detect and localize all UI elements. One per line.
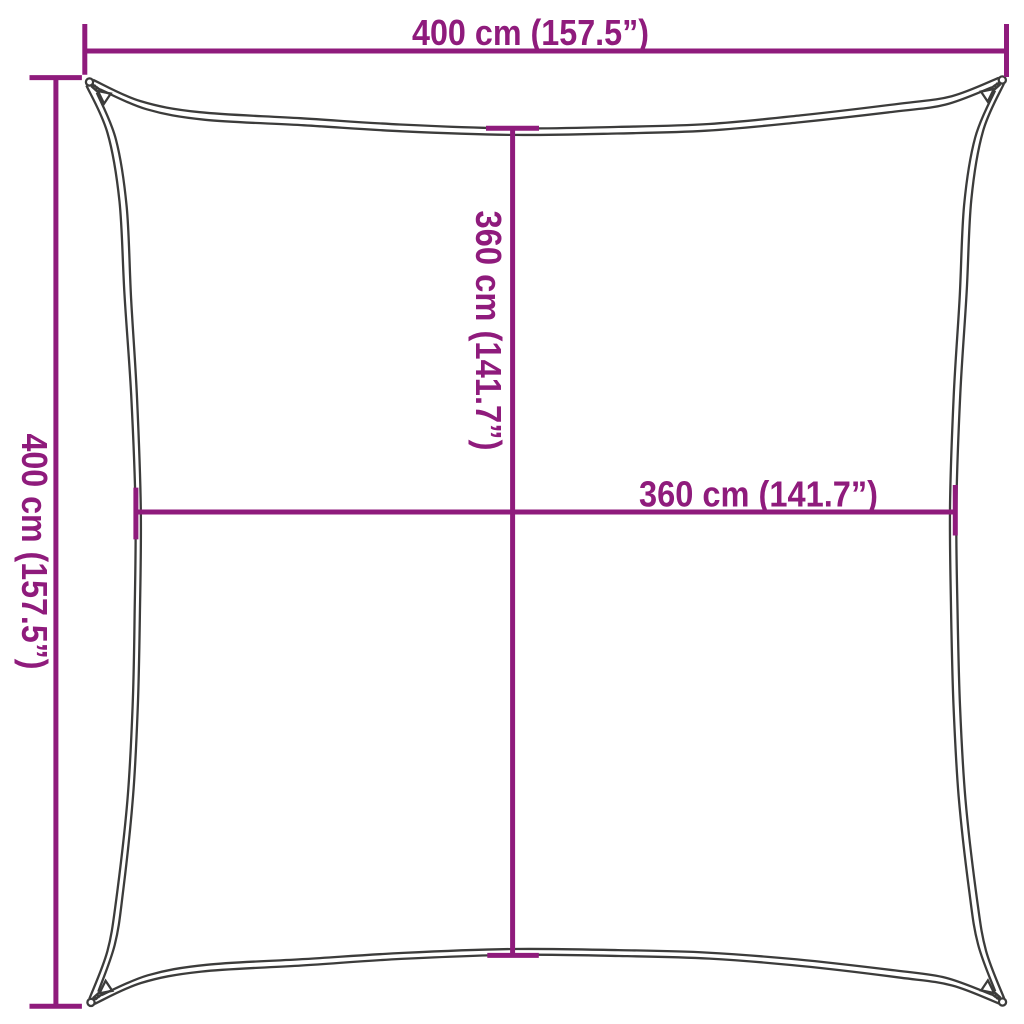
svg-text:400 cm (157.5”): 400 cm (157.5”) — [14, 434, 55, 670]
svg-text:360 cm (141.7”): 360 cm (141.7”) — [639, 474, 878, 515]
svg-text:400 cm (157.5”): 400 cm (157.5”) — [412, 12, 649, 53]
svg-text:360 cm (141.7”): 360 cm (141.7”) — [468, 211, 509, 451]
